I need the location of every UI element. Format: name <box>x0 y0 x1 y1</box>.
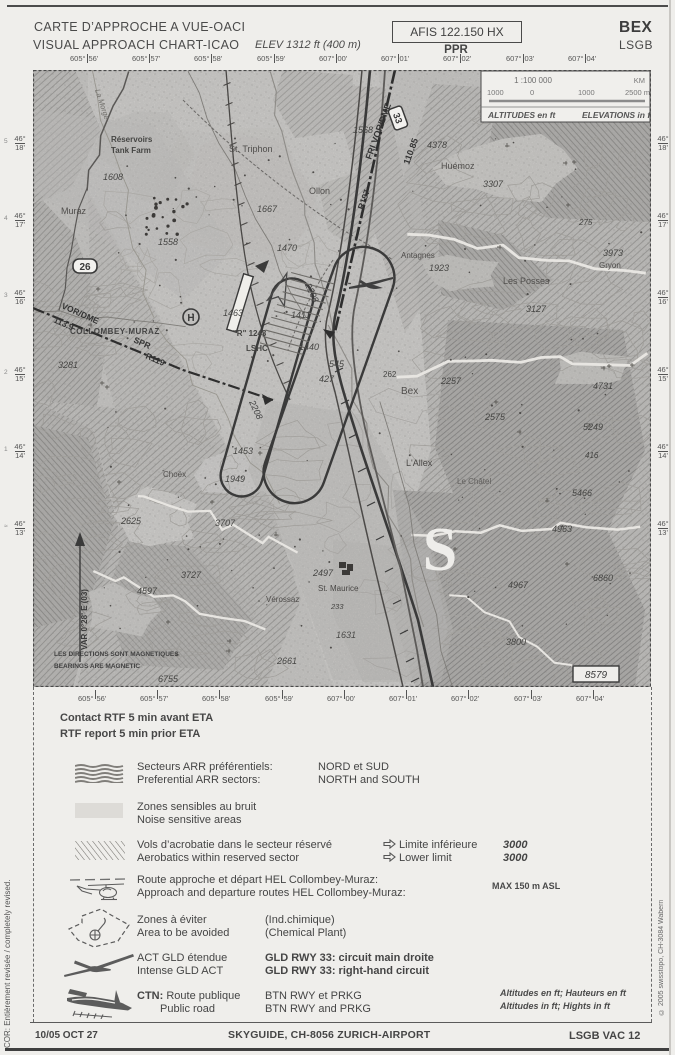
svg-text:1 :100 000: 1 :100 000 <box>514 76 552 85</box>
svg-text:3973: 3973 <box>603 248 623 258</box>
svg-text:LES DIRECTIONS SONT MAGNETIQUE: LES DIRECTIONS SONT MAGNETIQUES <box>54 651 179 658</box>
svg-text:1608: 1608 <box>103 172 123 182</box>
svg-text:3800: 3800 <box>506 637 526 647</box>
svg-text:545: 545 <box>329 359 345 369</box>
svg-text:427: 427 <box>319 374 335 384</box>
svg-text:275: 275 <box>578 218 593 227</box>
svg-text:3707: 3707 <box>215 518 236 528</box>
svg-text:4731: 4731 <box>593 381 613 391</box>
svg-text:ELEVATIONS in ft: ELEVATIONS in ft <box>582 110 651 120</box>
svg-text:2661: 2661 <box>276 656 297 666</box>
svg-text:Ollon: Ollon <box>309 186 330 196</box>
svg-text:1463: 1463 <box>223 308 243 318</box>
svg-text:233: 233 <box>330 602 344 611</box>
svg-text:2575: 2575 <box>484 412 506 422</box>
svg-text:1470: 1470 <box>277 243 297 253</box>
svg-text:1568: 1568 <box>353 125 373 135</box>
svg-text:0: 0 <box>530 88 534 97</box>
svg-text:L'Allex: L'Allex <box>406 458 433 468</box>
svg-text:Antagnes: Antagnes <box>401 251 435 260</box>
svg-text:1923: 1923 <box>429 263 449 273</box>
svg-text:Vérossaz: Vérossaz <box>266 595 299 604</box>
svg-text:4967: 4967 <box>508 580 529 590</box>
svg-text:1667: 1667 <box>257 204 278 214</box>
svg-text:VAR 0°28' E (03): VAR 0°28' E (03) <box>80 589 89 650</box>
svg-text:"R" 1243: "R" 1243 <box>233 329 267 338</box>
svg-text:1453: 1453 <box>233 446 253 456</box>
svg-text:S: S <box>423 516 457 584</box>
svg-text:6860: 6860 <box>593 573 613 583</box>
svg-text:1949: 1949 <box>225 474 245 484</box>
svg-text:St. Triphon: St. Triphon <box>229 144 273 154</box>
svg-text:1000: 1000 <box>578 88 595 97</box>
svg-text:BEARINGS ARE MAGNETIC: BEARINGS ARE MAGNETIC <box>54 663 140 670</box>
svg-text:LSHC: LSHC <box>246 344 268 353</box>
svg-text:2257: 2257 <box>440 376 462 386</box>
svg-text:2497: 2497 <box>312 568 334 578</box>
svg-text:4378: 4378 <box>427 140 447 150</box>
svg-text:5466: 5466 <box>572 488 592 498</box>
svg-text:3307: 3307 <box>483 179 504 189</box>
svg-text:St. Maurice: St. Maurice <box>318 584 359 593</box>
svg-text:4597: 4597 <box>137 586 158 596</box>
svg-text:1631: 1631 <box>336 630 356 640</box>
svg-text:416: 416 <box>585 451 599 460</box>
svg-text:1000: 1000 <box>487 88 504 97</box>
svg-text:KM: KM <box>634 76 645 85</box>
svg-text:Réservoirs: Réservoirs <box>111 135 153 144</box>
svg-text:1440: 1440 <box>299 342 319 352</box>
svg-text:4963: 4963 <box>552 524 572 534</box>
svg-text:H: H <box>187 313 194 324</box>
svg-text:2625: 2625 <box>120 516 142 526</box>
svg-text:26: 26 <box>79 262 91 273</box>
svg-text:Les Posses: Les Posses <box>503 276 550 286</box>
svg-text:6755: 6755 <box>158 674 179 684</box>
svg-text:Muraz: Muraz <box>61 206 87 216</box>
svg-text:Huémoz: Huémoz <box>441 161 475 171</box>
svg-text:Bex: Bex <box>401 386 418 397</box>
svg-text:Tank Farm: Tank Farm <box>111 146 151 155</box>
svg-text:3281: 3281 <box>58 360 78 370</box>
svg-text:3727: 3727 <box>181 570 202 580</box>
svg-text:1558: 1558 <box>158 237 178 247</box>
svg-text:262: 262 <box>383 370 397 379</box>
svg-text:2500 m: 2500 m <box>625 88 650 97</box>
svg-text:8579: 8579 <box>585 670 608 681</box>
svg-text:Le Châtel: Le Châtel <box>457 477 491 486</box>
svg-text:1411: 1411 <box>291 310 310 320</box>
svg-text:ALTITUDES en ft: ALTITUDES en ft <box>487 110 557 120</box>
svg-text:Choëx: Choëx <box>163 470 186 479</box>
svg-text:COLLOMBEY-MURAZ: COLLOMBEY-MURAZ <box>70 327 160 336</box>
svg-text:Gryon: Gryon <box>599 261 621 270</box>
svg-text:5249: 5249 <box>583 422 603 432</box>
svg-text:3127: 3127 <box>526 304 547 314</box>
